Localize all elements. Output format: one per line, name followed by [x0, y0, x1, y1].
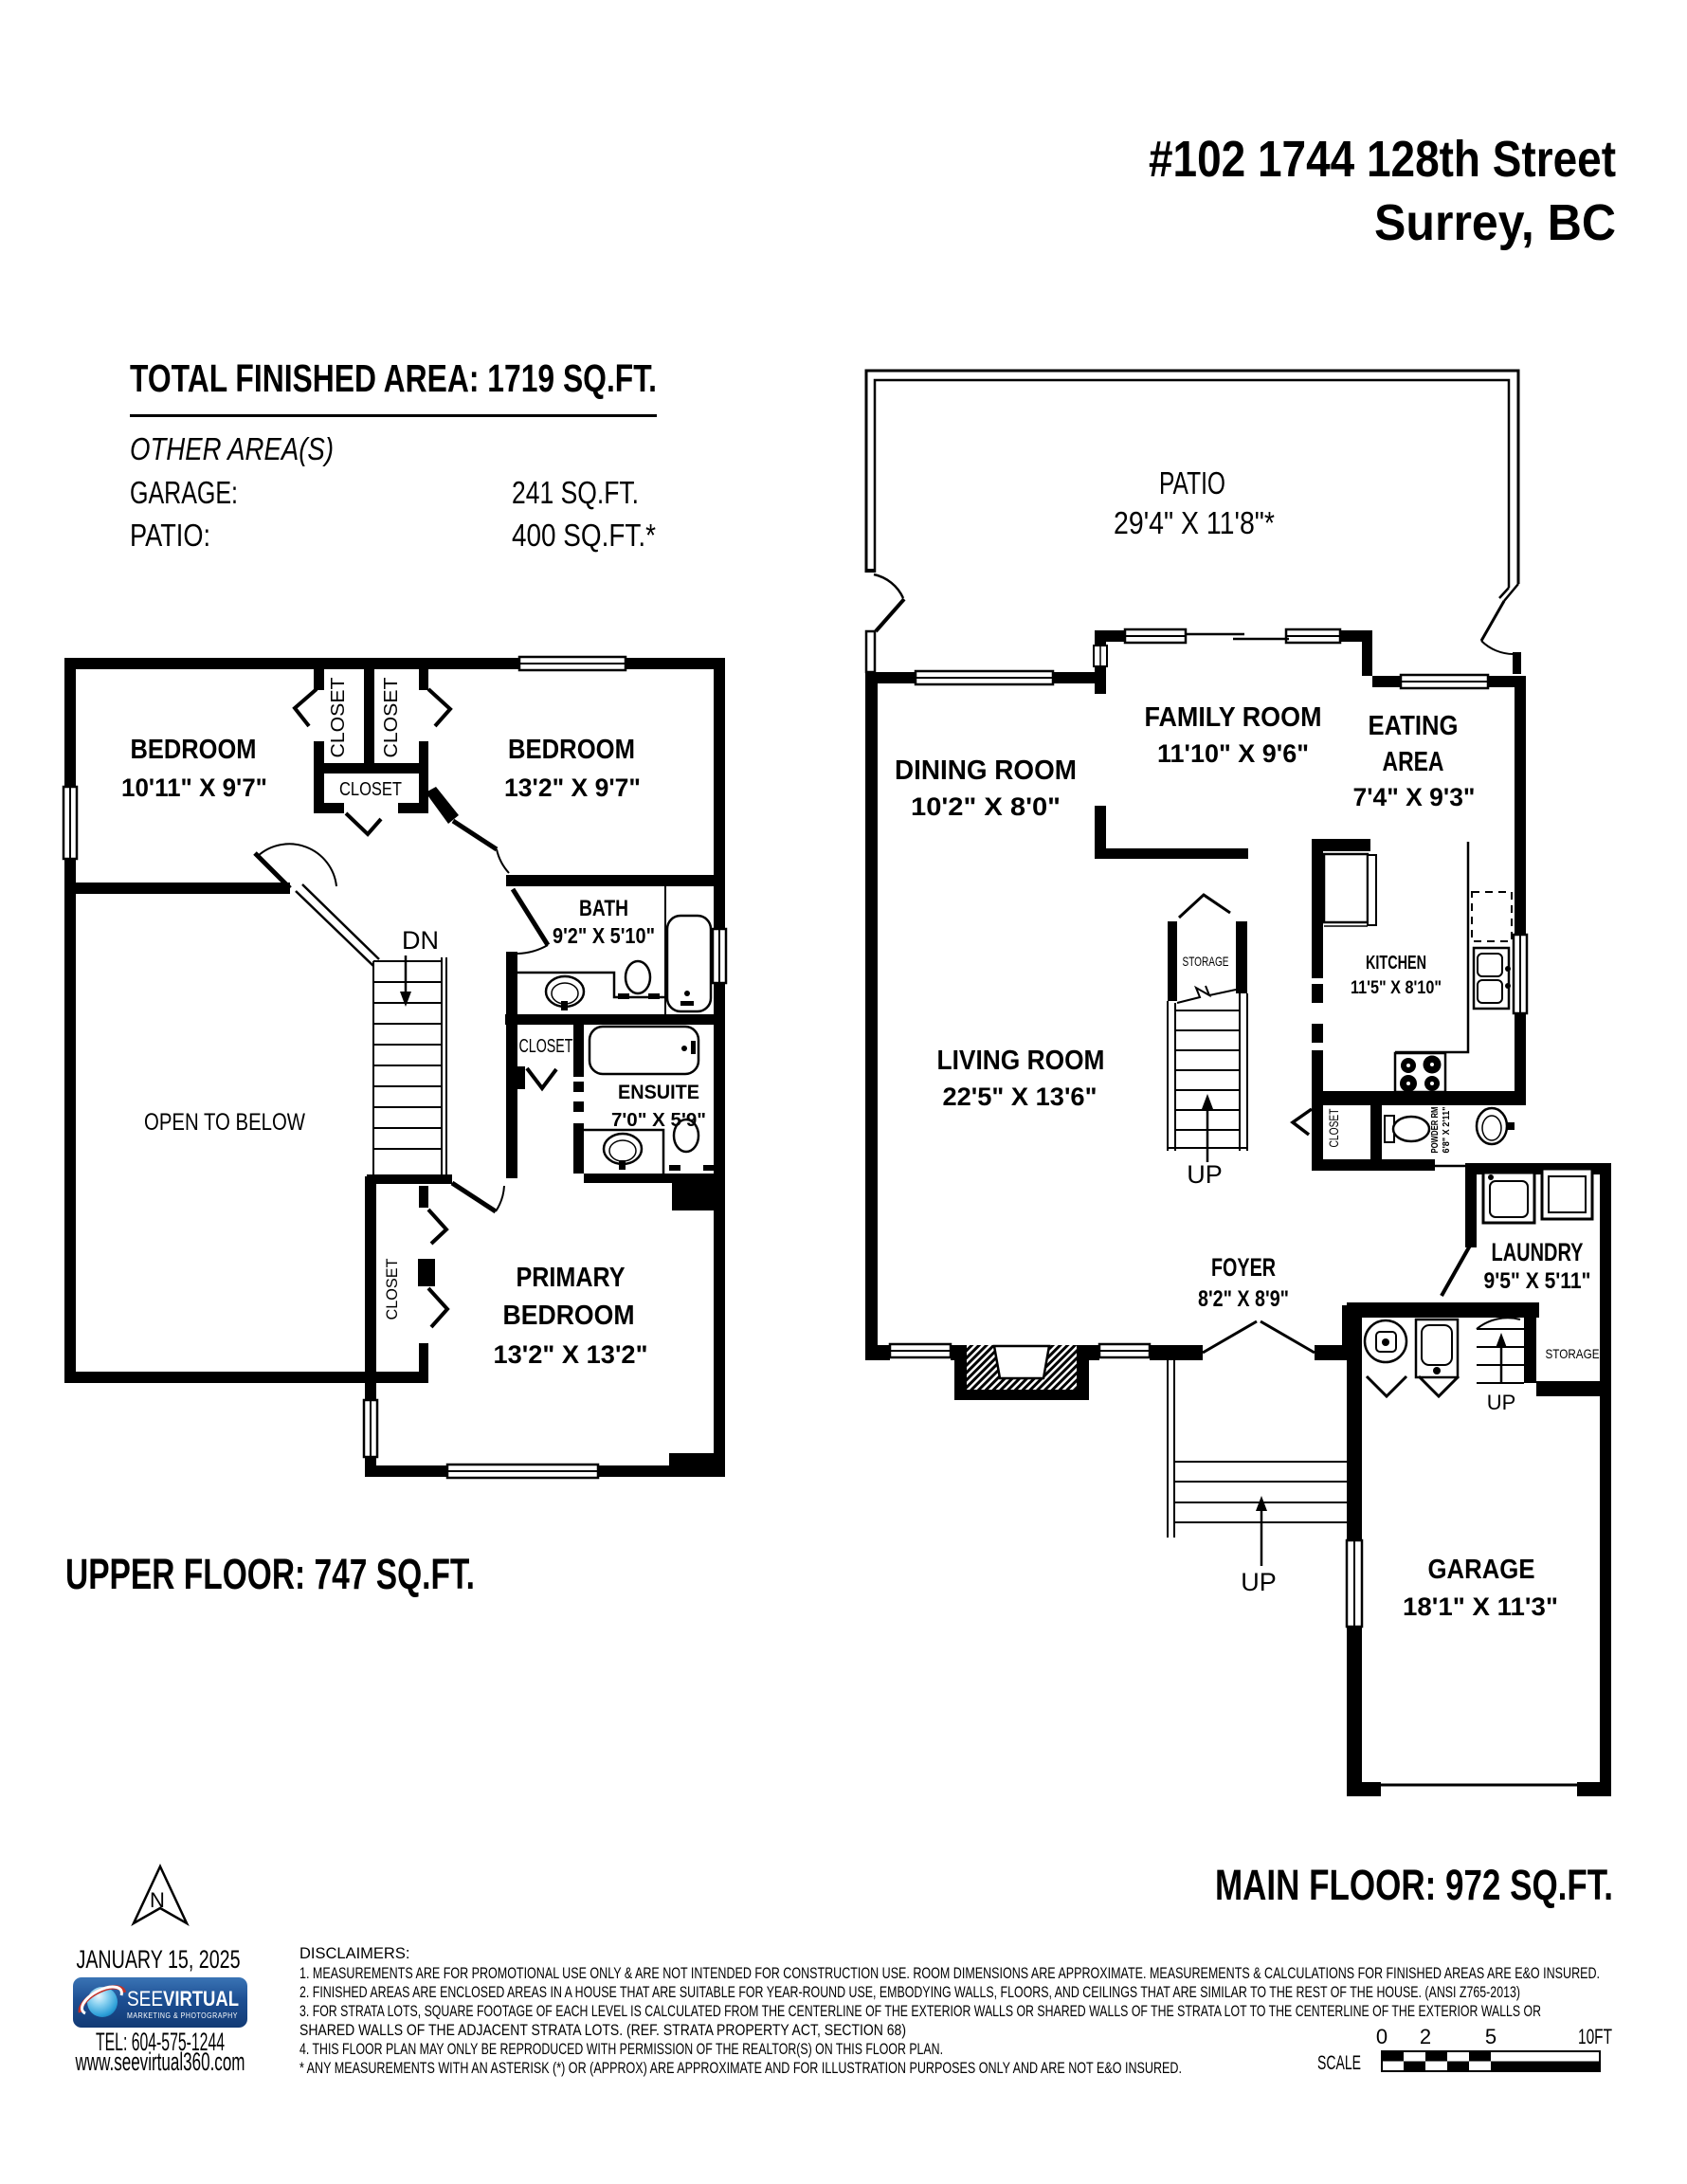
svg-text:4. THIS FLOOR PLAN MAY ONLY BE: 4. THIS FLOOR PLAN MAY ONLY BE REPRODUCE… [299, 2041, 943, 2058]
svg-text:0: 0 [1376, 2025, 1388, 2048]
svg-text:MARKETING & PHOTOGRAPHY: MARKETING & PHOTOGRAPHY [127, 2011, 238, 2020]
svg-text:STORAGE: STORAGE [1546, 1346, 1600, 1361]
svg-text:UP: UP [1487, 1391, 1516, 1414]
svg-text:7'0" X 5'9": 7'0" X 5'9" [611, 1110, 706, 1131]
svg-text:DISCLAIMERS:: DISCLAIMERS: [299, 1945, 409, 1962]
svg-text:TOTAL FINISHED AREA: 1719 SQ.: TOTAL FINISHED AREA: 1719 SQ.FT. [130, 356, 657, 400]
svg-text:29'4" X 11'8"*: 29'4" X 11'8"* [1114, 505, 1275, 540]
svg-text:10'2" X 8'0": 10'2" X 8'0" [911, 792, 1061, 821]
svg-text:22'5" X 13'6": 22'5" X 13'6" [943, 1083, 1097, 1111]
svg-text:9'5" X 5'11": 9'5" X 5'11" [1484, 1268, 1591, 1294]
svg-text:EATING: EATING [1369, 711, 1459, 741]
svg-text:MAIN FLOOR: 972 SQ.FT.: MAIN FLOOR: 972 SQ.FT. [1215, 1861, 1613, 1909]
svg-text:UPPER FLOOR: 747 SQ.FT.: UPPER FLOOR: 747 SQ.FT. [65, 1550, 475, 1598]
svg-text:VIRTUAL: VIRTUAL [163, 1987, 239, 2011]
svg-text:CLOSET: CLOSET [383, 1259, 401, 1320]
svg-text:FAMILY ROOM: FAMILY ROOM [1145, 702, 1322, 733]
svg-text:N: N [150, 1888, 165, 1912]
svg-text:BEDROOM: BEDROOM [131, 735, 257, 765]
svg-text:KITCHEN: KITCHEN [1366, 953, 1426, 974]
svg-text:BATH: BATH [579, 896, 628, 921]
svg-text:#102 1744 128th Street: #102 1744 128th Street [1149, 131, 1616, 188]
svg-text:8'2" X 8'9": 8'2" X 8'9" [1198, 1286, 1289, 1312]
svg-text:PRIMARY: PRIMARY [517, 1263, 626, 1293]
svg-text:Surrey, BC: Surrey, BC [1374, 194, 1616, 251]
svg-text:DN: DN [402, 926, 439, 955]
svg-text:ENSUITE: ENSUITE [618, 1082, 699, 1103]
svg-text:www.seevirtual360.com: www.seevirtual360.com [75, 2047, 245, 2076]
svg-text:9'2" X 5'10": 9'2" X 5'10" [553, 923, 655, 948]
svg-text:SCALE: SCALE [1317, 2052, 1361, 2074]
svg-text:BEDROOM: BEDROOM [503, 1301, 635, 1331]
svg-text:CLOSET: CLOSET [519, 1036, 573, 1057]
svg-text:CLOSET: CLOSET [381, 678, 402, 758]
svg-text:AREA: AREA [1383, 747, 1444, 777]
svg-text:STORAGE: STORAGE [1183, 954, 1229, 969]
svg-text:SHARED WALLS OF THE ADJACENT S: SHARED WALLS OF THE ADJACENT STRATA LOTS… [299, 2022, 906, 2039]
svg-text:BEDROOM: BEDROOM [508, 735, 635, 765]
svg-text:7'4" X 9'3": 7'4" X 9'3" [1353, 783, 1476, 811]
svg-text:6'8" X 2'11": 6'8" X 2'11" [1442, 1106, 1452, 1153]
svg-text:3. FOR STRATA LOTS, SQUARE FOO: 3. FOR STRATA LOTS, SQUARE FOOTAGE OF EA… [299, 2003, 1541, 2020]
svg-text:GARAGE:: GARAGE: [130, 475, 238, 510]
svg-text:10FT: 10FT [1578, 2025, 1612, 2048]
svg-text:GARAGE: GARAGE [1428, 1555, 1535, 1585]
svg-text:400 SQ.FT.*: 400 SQ.FT.* [512, 518, 656, 553]
svg-text:CLOSET: CLOSET [339, 779, 402, 800]
svg-text:POWDER RM: POWDER RM [1430, 1107, 1441, 1154]
svg-text:LAUNDRY: LAUNDRY [1492, 1238, 1584, 1266]
svg-text:OTHER AREA(S): OTHER AREA(S) [130, 431, 334, 466]
svg-text:FOYER: FOYER [1211, 1253, 1276, 1282]
svg-text:OPEN TO BELOW: OPEN TO BELOW [144, 1109, 305, 1136]
svg-text:DINING ROOM: DINING ROOM [895, 755, 1077, 786]
svg-text:13'2" X 13'2": 13'2" X 13'2" [494, 1340, 648, 1369]
svg-text:PATIO:: PATIO: [130, 518, 210, 553]
svg-text:1. MEASUREMENTS ARE FOR PROMOT: 1. MEASUREMENTS ARE FOR PROMOTIONAL USE … [299, 1965, 1600, 1982]
svg-text:* ANY MEASUREMENTS WITH AN AST: * ANY MEASUREMENTS WITH AN ASTERISK (*) … [299, 2060, 1182, 2077]
svg-text:CLOSET: CLOSET [1326, 1108, 1341, 1147]
svg-text:11'5" X 8'10": 11'5" X 8'10" [1351, 978, 1442, 998]
svg-text:13'2" X 9'7": 13'2" X 9'7" [504, 773, 641, 802]
svg-text:2: 2 [1420, 2025, 1431, 2048]
svg-text:SEE: SEE [127, 1987, 163, 2011]
svg-text:JANUARY 15, 2025: JANUARY 15, 2025 [77, 1945, 241, 1974]
svg-text:5: 5 [1485, 2025, 1497, 2048]
svg-text:241 SQ.FT.: 241 SQ.FT. [512, 475, 639, 510]
svg-text:11'10" X 9'6": 11'10" X 9'6" [1157, 739, 1309, 768]
svg-text:2. FINISHED AREAS ARE ENCLOSED: 2. FINISHED AREAS ARE ENCLOSED AREAS IN … [299, 1984, 1520, 2001]
svg-text:CLOSET: CLOSET [328, 678, 349, 758]
svg-text:UP: UP [1241, 1568, 1277, 1596]
svg-text:LIVING ROOM: LIVING ROOM [937, 1046, 1105, 1076]
svg-text:18'1" X 11'3": 18'1" X 11'3" [1403, 1592, 1558, 1621]
svg-text:PATIO: PATIO [1159, 465, 1225, 500]
svg-text:UP: UP [1187, 1160, 1223, 1189]
svg-text:10'11" X 9'7": 10'11" X 9'7" [121, 773, 267, 802]
